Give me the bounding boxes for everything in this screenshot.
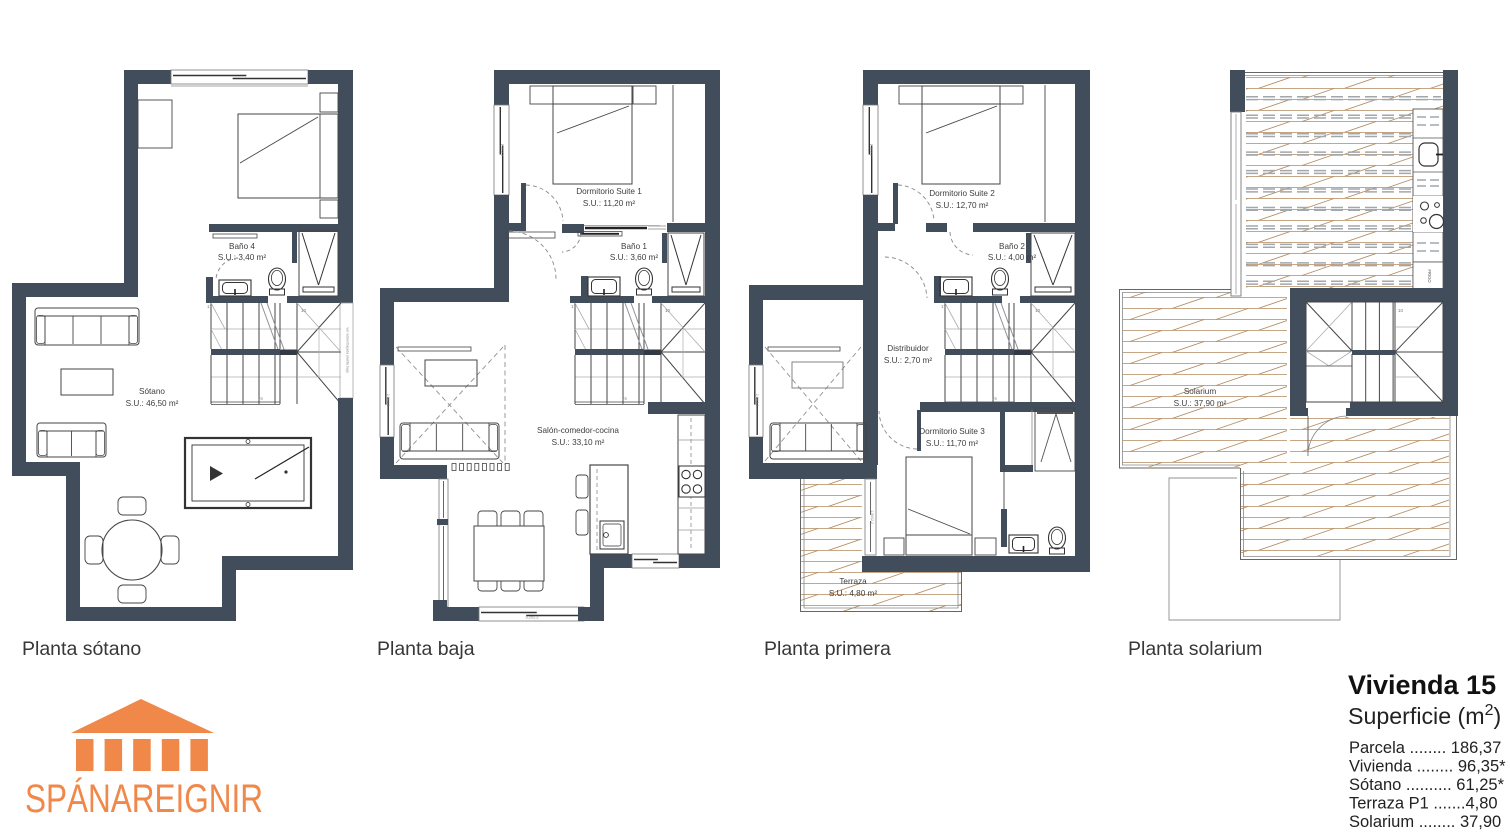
svg-text:Baño 4: Baño 4: [229, 242, 255, 251]
svg-text:S.U.: 33,10 m²: S.U.: 33,10 m²: [552, 438, 605, 447]
svg-text:Planta sótano: Planta sótano: [22, 638, 141, 660]
svg-text:S.U.: 11,20 m²: S.U.: 11,20 m²: [583, 199, 635, 208]
svg-text:Planta solarium: Planta solarium: [1128, 638, 1262, 660]
svg-text:1.8X2.2: 1.8X2.2: [869, 144, 873, 156]
svg-text:SPÁNAREIGNIR: SPÁNAREIGNIR: [25, 776, 263, 821]
svg-text:Sótano .......... 61,25*: Sótano .......... 61,25*: [1349, 776, 1505, 794]
svg-text:Terraza: Terraza: [839, 577, 867, 586]
svg-text:S.U.: 4,80 m²: S.U.: 4,80 m²: [829, 589, 878, 598]
svg-text:2.2X2.2: 2.2X2.2: [755, 394, 759, 406]
svg-text:Dormitorio Suite 3: Dormitorio Suite 3: [919, 427, 985, 436]
svg-text:Dormitorio Suite 1: Dormitorio Suite 1: [576, 187, 642, 196]
svg-text:17: 17: [941, 304, 947, 309]
svg-text:Baño 2: Baño 2: [999, 242, 1025, 251]
svg-text:Solarium: Solarium: [1184, 387, 1216, 396]
svg-text:Vivienda ........ 96,35*: Vivienda ........ 96,35*: [1349, 758, 1506, 776]
svg-text:S.U.: 4,00 m²: S.U.: 4,00 m²: [988, 253, 1037, 262]
svg-text:Distribuidor: Distribuidor: [887, 344, 929, 353]
svg-text:S.U.: 3,60 m²: S.U.: 3,60 m²: [610, 253, 659, 262]
svg-text:Dormitorio Suite 2: Dormitorio Suite 2: [929, 189, 995, 198]
svg-text:26: 26: [992, 396, 998, 401]
svg-text:Planta primera: Planta primera: [764, 638, 891, 660]
svg-text:Salón-comedor-cocina: Salón-comedor-cocina: [537, 426, 619, 435]
svg-text:26: 26: [258, 396, 264, 401]
svg-text:10: 10: [1398, 308, 1404, 313]
svg-text:S.U.: 37,90 m²: S.U.: 37,90 m²: [1174, 399, 1227, 408]
svg-text:S.U.: 12,70 m²: S.U.: 12,70 m²: [936, 201, 989, 210]
svg-text:Terraza P1 .......4,80: Terraza P1 .......4,80: [1349, 795, 1498, 813]
svg-text:17: 17: [207, 304, 213, 309]
svg-text:1.8X2.2: 1.8X2.2: [500, 144, 504, 156]
svg-text:1.56X2.2: 1.56X2.2: [870, 510, 874, 524]
svg-text:Vivienda 15: Vivienda 15: [1348, 670, 1496, 700]
svg-text:Planta baja: Planta baja: [377, 638, 475, 660]
svg-text:ver sobre/bajada planta baja: ver sobre/bajada planta baja: [346, 327, 350, 372]
svg-text:S.U.: 3,40 m²: S.U.: 3,40 m²: [218, 253, 267, 262]
svg-text:S.U.: 46,50 m²: S.U.: 46,50 m²: [126, 399, 179, 408]
svg-text:S.U.: 2,70 m²: S.U.: 2,70 m²: [884, 356, 933, 365]
svg-text:S.U.: 11,70 m²: S.U.: 11,70 m²: [926, 439, 978, 448]
svg-text:3.2X2.2: 3.2X2.2: [525, 616, 538, 620]
svg-text:Solarium ........ 37,90: Solarium ........ 37,90: [1349, 813, 1501, 831]
svg-text:Superficie (m2): Superficie (m2): [1348, 702, 1501, 729]
svg-text:Sótano: Sótano: [139, 387, 165, 396]
svg-text:Baño 1: Baño 1: [621, 242, 647, 251]
svg-text:26: 26: [622, 396, 628, 401]
svg-text:2.2X2.2: 2.2X2.2: [386, 394, 390, 406]
svg-text:17: 17: [571, 304, 577, 309]
svg-text:10: 10: [301, 308, 307, 313]
svg-text:10: 10: [665, 308, 671, 313]
svg-text:10: 10: [1035, 308, 1041, 313]
svg-text:FRIGO: FRIGO: [1427, 269, 1432, 283]
svg-text:Parcela ........ 186,37: Parcela ........ 186,37: [1349, 739, 1501, 757]
